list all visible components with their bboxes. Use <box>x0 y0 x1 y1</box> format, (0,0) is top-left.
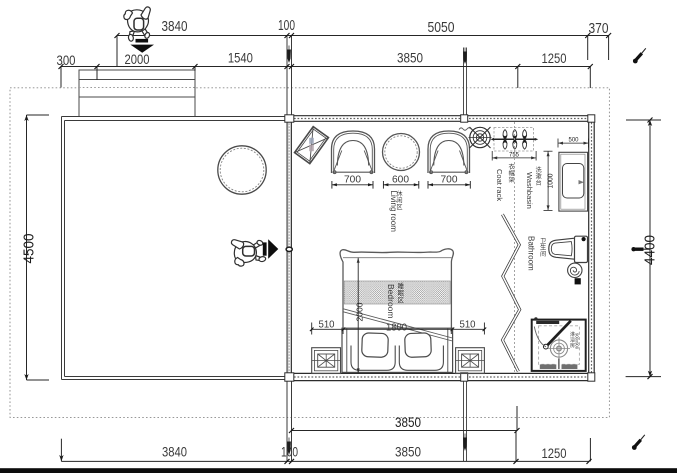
svg-text:Coat rack: Coat rack <box>495 169 504 201</box>
svg-text:睡眠区: 睡眠区 <box>398 282 405 304</box>
svg-text:1540: 1540 <box>228 50 253 66</box>
svg-text:700: 700 <box>441 173 458 185</box>
svg-text:Washbasin: Washbasin <box>525 172 534 209</box>
svg-text:淋浴房: 淋浴房 <box>570 331 575 349</box>
svg-text:3840: 3840 <box>162 19 188 35</box>
svg-text:卫生间: 卫生间 <box>540 238 546 258</box>
svg-text:2000: 2000 <box>355 302 365 321</box>
svg-text:300: 300 <box>57 52 76 68</box>
svg-text:3850: 3850 <box>395 444 421 460</box>
svg-text:3850: 3850 <box>395 414 421 430</box>
svg-text:700: 700 <box>344 173 361 185</box>
svg-text:1000: 1000 <box>548 173 555 188</box>
svg-text:510: 510 <box>460 319 476 331</box>
svg-text:Bedroom: Bedroom <box>386 284 396 319</box>
svg-text:3850: 3850 <box>397 50 423 66</box>
svg-text:100: 100 <box>278 18 295 34</box>
svg-text:Living room: Living room <box>389 191 398 233</box>
svg-text:3840: 3840 <box>162 444 187 460</box>
svg-text:1250: 1250 <box>542 50 567 66</box>
svg-text:洗漱台: 洗漱台 <box>536 166 543 187</box>
svg-text:900x900: 900x900 <box>575 333 580 350</box>
svg-text:Bathroom: Bathroom <box>527 236 536 271</box>
svg-text:600: 600 <box>392 173 409 185</box>
svg-text:510: 510 <box>319 319 335 331</box>
svg-text:500: 500 <box>569 138 580 144</box>
svg-text:1800: 1800 <box>386 322 407 334</box>
svg-text:1250: 1250 <box>542 445 567 461</box>
svg-text:衣帽架: 衣帽架 <box>509 163 515 184</box>
svg-text:4500: 4500 <box>21 234 38 264</box>
svg-text:5050: 5050 <box>428 20 455 36</box>
svg-text:4400: 4400 <box>642 235 659 265</box>
svg-text:370: 370 <box>589 21 609 37</box>
svg-text:2000: 2000 <box>125 51 150 67</box>
